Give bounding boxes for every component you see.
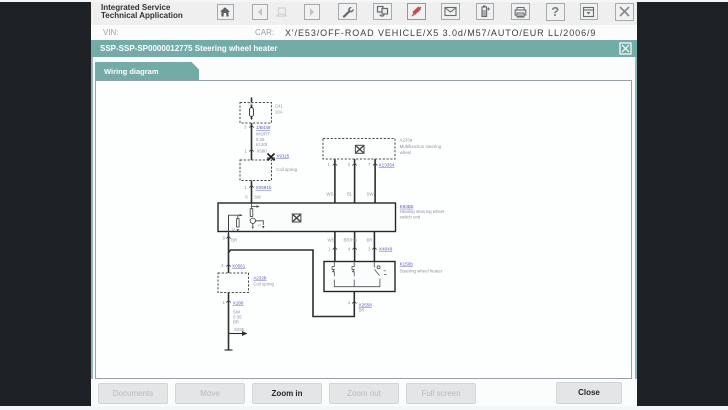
- svg-text:3: 3: [244, 124, 247, 129]
- svg-text:9: 9: [223, 236, 226, 241]
- svg-text:X186: X186: [233, 300, 244, 305]
- svg-text:7: 7: [368, 162, 371, 167]
- svg-text:BR: BR: [367, 238, 373, 243]
- svg-text:Heating steering wheel: Heating steering wheel: [400, 209, 445, 214]
- svg-text:X580: X580: [257, 148, 268, 153]
- svg-text:WS: WS: [328, 238, 335, 243]
- svg-text:H: H: [258, 224, 261, 228]
- svg-text:30: 30: [248, 102, 253, 107]
- svg-text:C41: C41: [275, 104, 284, 109]
- svg-text:A232b: A232b: [253, 275, 267, 280]
- svg-text:WS: WS: [327, 192, 334, 197]
- svg-text:4: 4: [348, 301, 351, 306]
- svg-text:X0561: X0561: [232, 264, 246, 269]
- svg-text:1: 1: [245, 185, 248, 190]
- svg-text:BR: BR: [231, 238, 237, 243]
- svg-text:4: 4: [348, 246, 351, 251]
- svg-text:3: 3: [368, 246, 371, 251]
- svg-text:BR/HB: BR/HB: [344, 238, 357, 243]
- svg-text:4: 4: [348, 162, 351, 167]
- svg-text:SW: SW: [367, 192, 375, 197]
- svg-text:1: 1: [328, 162, 331, 167]
- svg-text:wheel: wheel: [400, 150, 411, 155]
- svg-text:1: 1: [223, 300, 226, 305]
- svg-text:K150b: K150b: [400, 262, 414, 267]
- svg-text:X2558: X2558: [359, 303, 373, 308]
- svg-text:Multifunction steering: Multifunction steering: [400, 144, 442, 149]
- svg-text:X4049: X4049: [379, 247, 393, 252]
- svg-text:X0561b: X0561b: [256, 185, 272, 190]
- svg-text:K93Bb: K93Bb: [400, 204, 414, 209]
- svg-text:1x: 1x: [232, 228, 236, 232]
- svg-text:1/B448: 1/B448: [256, 125, 271, 130]
- svg-text:0.35: 0.35: [256, 137, 265, 142]
- svg-text:SW: SW: [254, 194, 262, 199]
- svg-text:BR: BR: [359, 308, 365, 313]
- svg-text:switch unit: switch unit: [400, 215, 421, 220]
- svg-text:Coil spring: Coil spring: [253, 281, 274, 286]
- svg-text:BR: BR: [233, 319, 239, 324]
- svg-text:1: 1: [328, 246, 331, 251]
- svg-text:Kl.30f: Kl.30f: [256, 142, 268, 147]
- svg-text:X13354: X13354: [379, 163, 395, 168]
- svg-text:X255: X255: [234, 327, 245, 332]
- svg-text:A233a: A233a: [400, 138, 413, 143]
- svg-text:Steering wheel heater: Steering wheel heater: [400, 269, 443, 274]
- svg-text:X9115: X9115: [276, 154, 289, 159]
- svg-text:BL: BL: [347, 192, 353, 197]
- svg-text:Coil spring: Coil spring: [276, 167, 297, 172]
- svg-text:1: 1: [245, 148, 248, 153]
- svg-text:WS/RT: WS/RT: [256, 132, 270, 137]
- svg-text:10A: 10A: [275, 110, 283, 115]
- svg-text:6: 6: [245, 194, 248, 199]
- svg-text:4: 4: [221, 263, 224, 268]
